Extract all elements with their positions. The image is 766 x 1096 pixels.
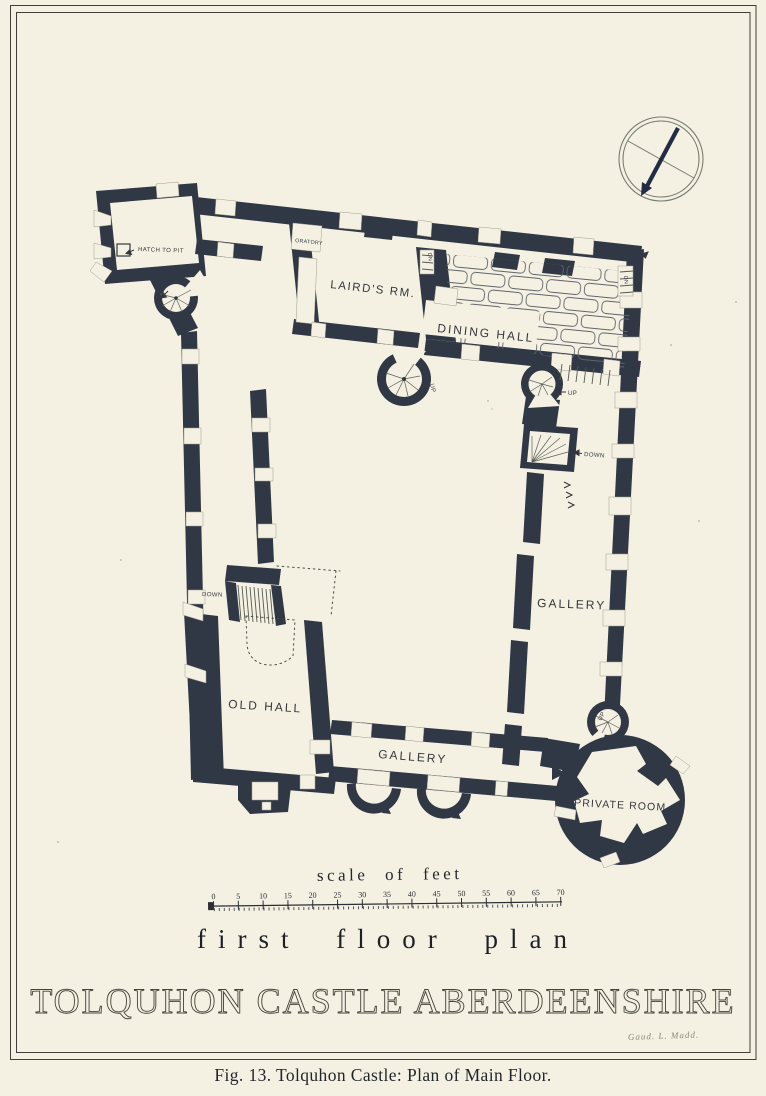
scale-tick: 10 [259,891,267,900]
scale-tick: 30 [358,890,366,899]
scale-tick: 70 [557,888,565,897]
scale-tick: 45 [433,889,441,898]
floor-plan-title: first floor plan [197,924,579,954]
scale-tick: 65 [532,888,540,897]
scale-tick: 55 [482,889,490,898]
newel-stair-east [520,424,578,472]
scanned-plate: HATCH TO PIT ORATORY LAIRD'S RM. DINING … [0,0,766,1096]
scale-tick: 25 [333,891,341,900]
scale-tick: 60 [507,888,515,897]
scale-title: scale of feet [317,864,463,885]
figure-caption: Fig. 13. Tolquhon Castle: Plan of Main F… [214,1065,551,1085]
label-down-west: DOWN [202,592,223,599]
label-dn-lairds: DN [426,253,433,262]
scale-tick: 35 [383,890,391,899]
scale-tick: 0 [211,892,215,901]
label-dn-dining: DN [622,276,629,285]
scale-tick: 50 [457,889,465,898]
label-gallery-east: GALLERY [537,596,607,612]
main-title: TOLQUHON CASTLE ABERDEENSHIRE [30,981,735,1021]
scale-tick: 15 [284,891,292,900]
scale-tick: 20 [309,891,317,900]
scale-tick: 5 [236,892,240,901]
label-up-east: UP [568,391,577,397]
scale-tick: 40 [408,890,416,899]
floor-plan-drawing: HATCH TO PIT ORATORY LAIRD'S RM. DINING … [0,0,766,1096]
